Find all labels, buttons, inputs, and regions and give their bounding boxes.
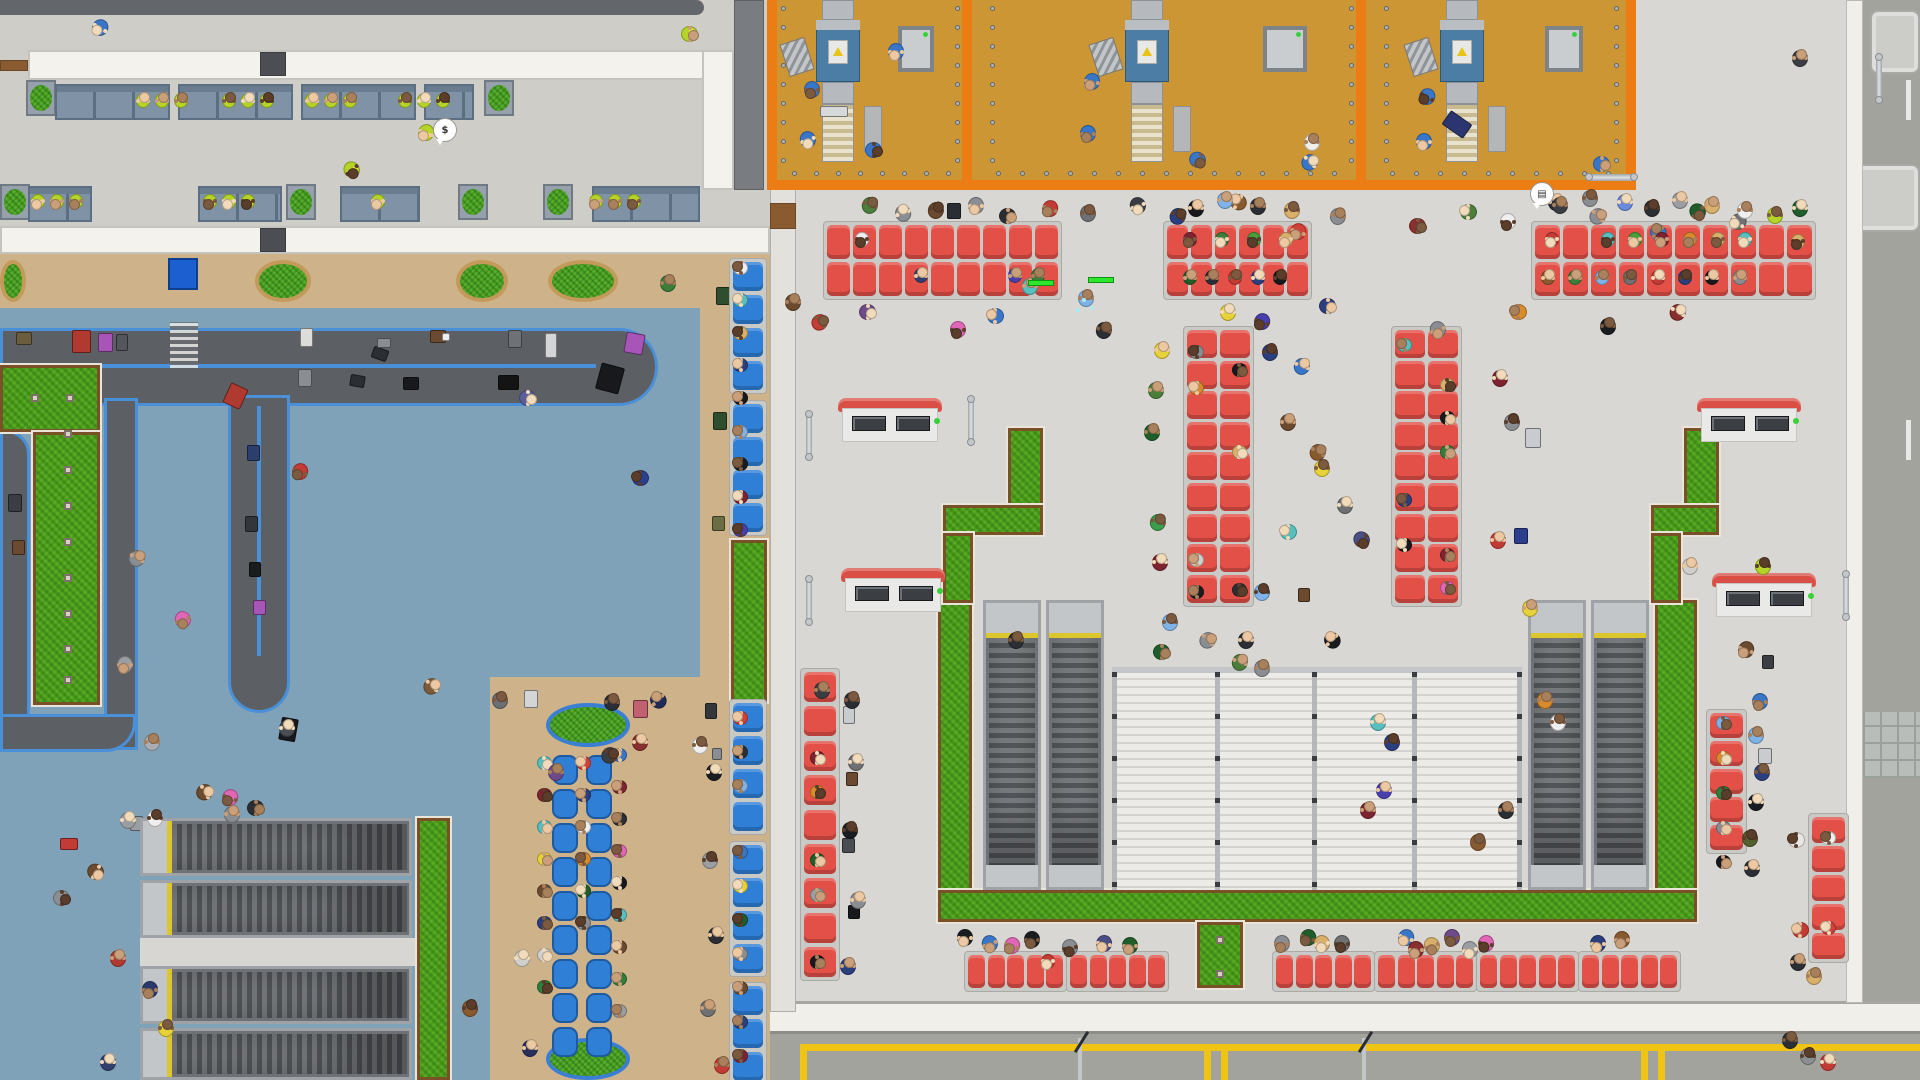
person[interactable]: [813, 680, 831, 700]
person[interactable]: [809, 852, 827, 868]
person[interactable]: [1253, 658, 1271, 678]
person[interactable]: [119, 810, 137, 830]
seat[interactable]: [1395, 575, 1425, 603]
baggage-carousel-belt[interactable]: [104, 398, 138, 750]
person[interactable]: [1819, 920, 1837, 936]
seat[interactable]: [1220, 483, 1250, 511]
seat[interactable]: [1563, 225, 1588, 259]
person[interactable]: [1790, 233, 1806, 251]
seat[interactable]: [879, 225, 902, 259]
person[interactable]: [68, 193, 84, 211]
person[interactable]: [1077, 288, 1095, 308]
seat[interactable]: [1187, 483, 1217, 511]
person[interactable]: [1278, 523, 1298, 541]
person[interactable]: [1540, 268, 1556, 286]
escalator[interactable]: [1591, 600, 1649, 890]
person[interactable]: [1253, 582, 1271, 602]
person[interactable]: [1187, 198, 1205, 218]
person[interactable]: [701, 850, 719, 870]
person[interactable]: [1754, 556, 1772, 576]
person[interactable]: [1231, 362, 1249, 378]
person[interactable]: [416, 91, 432, 109]
person[interactable]: [536, 915, 554, 931]
inspection-desk[interactable]: [1173, 106, 1191, 152]
escalator[interactable]: [1528, 600, 1586, 890]
person[interactable]: [1682, 231, 1698, 249]
person[interactable]: [731, 325, 749, 341]
seat[interactable]: [1187, 452, 1217, 480]
person[interactable]: [849, 890, 867, 910]
seat[interactable]: [931, 225, 954, 259]
person[interactable]: [1677, 268, 1693, 286]
person[interactable]: [1599, 316, 1617, 336]
person[interactable]: [731, 844, 749, 860]
person[interactable]: [435, 91, 451, 109]
person[interactable]: [1715, 750, 1733, 766]
person[interactable]: [518, 389, 538, 407]
person[interactable]: [342, 91, 358, 109]
person[interactable]: [731, 980, 749, 996]
person[interactable]: [1819, 1052, 1837, 1072]
person[interactable]: [705, 762, 723, 782]
person[interactable]: [1246, 231, 1262, 249]
person[interactable]: [1589, 934, 1607, 954]
person[interactable]: [809, 784, 827, 800]
seat[interactable]: [1090, 955, 1107, 988]
person[interactable]: [574, 915, 592, 931]
person[interactable]: [1549, 712, 1567, 732]
person[interactable]: [843, 690, 861, 710]
person[interactable]: [809, 887, 827, 903]
person[interactable]: [1395, 537, 1413, 553]
person[interactable]: [858, 303, 878, 321]
seat[interactable]: [1759, 262, 1784, 296]
person[interactable]: [1311, 933, 1332, 956]
person[interactable]: [1747, 792, 1765, 812]
seat[interactable]: [1109, 955, 1126, 988]
person[interactable]: [1249, 196, 1267, 216]
person[interactable]: [536, 947, 554, 963]
seat[interactable]: [1437, 955, 1454, 988]
person[interactable]: [1736, 200, 1754, 220]
person[interactable]: [949, 320, 967, 340]
seat[interactable]: [1296, 955, 1313, 988]
person[interactable]: [1214, 231, 1230, 249]
seat[interactable]: [1007, 955, 1024, 988]
person[interactable]: [1147, 380, 1165, 400]
person[interactable]: [1439, 410, 1457, 426]
person[interactable]: [221, 91, 237, 109]
person[interactable]: [731, 489, 749, 505]
person[interactable]: [1715, 854, 1733, 870]
person[interactable]: [202, 193, 218, 211]
seat[interactable]: [827, 225, 850, 259]
person[interactable]: [1336, 495, 1354, 515]
seat[interactable]: [1812, 933, 1845, 959]
person[interactable]: [173, 91, 189, 109]
seat[interactable]: [1395, 391, 1425, 419]
person[interactable]: [536, 979, 554, 995]
person[interactable]: [1567, 268, 1583, 286]
person[interactable]: [1613, 930, 1631, 950]
person[interactable]: [610, 779, 628, 795]
person[interactable]: [1781, 1030, 1799, 1050]
seat[interactable]: [968, 955, 985, 988]
person[interactable]: [52, 889, 72, 907]
seat[interactable]: [733, 802, 763, 831]
service-vehicle[interactable]: [1854, 164, 1920, 232]
person[interactable]: [1536, 690, 1554, 710]
person[interactable]: [731, 912, 749, 928]
person[interactable]: [998, 207, 1018, 225]
person[interactable]: [1805, 966, 1823, 986]
person[interactable]: [1250, 268, 1266, 286]
person[interactable]: [1766, 205, 1784, 225]
seat[interactable]: [1395, 361, 1425, 389]
person[interactable]: [1732, 268, 1748, 286]
seat[interactable]: [983, 225, 1006, 259]
person[interactable]: [521, 1038, 539, 1058]
person[interactable]: [1369, 712, 1387, 732]
person[interactable]: [1551, 195, 1569, 215]
person[interactable]: [240, 193, 256, 211]
person[interactable]: [513, 948, 531, 968]
person[interactable]: [1161, 612, 1179, 632]
person[interactable]: [1359, 800, 1377, 820]
person[interactable]: [803, 80, 821, 100]
person[interactable]: [1622, 268, 1638, 286]
person[interactable]: [603, 692, 621, 712]
person[interactable]: [659, 273, 677, 293]
person[interactable]: [1786, 831, 1806, 849]
seat[interactable]: [1812, 875, 1845, 901]
person[interactable]: [1121, 936, 1139, 956]
person[interactable]: [913, 266, 929, 284]
escalator[interactable]: [140, 1028, 412, 1080]
person[interactable]: [1616, 192, 1634, 212]
escalator[interactable]: [140, 818, 412, 876]
person[interactable]: [574, 851, 592, 867]
seat[interactable]: [1812, 846, 1845, 872]
person[interactable]: [1327, 205, 1348, 228]
seat[interactable]: [957, 262, 980, 296]
seat[interactable]: [1276, 955, 1293, 988]
person[interactable]: [1600, 231, 1616, 249]
seat[interactable]: [1009, 225, 1032, 259]
person[interactable]: [1204, 268, 1220, 286]
person[interactable]: [370, 193, 386, 211]
person[interactable]: [731, 357, 749, 373]
person[interactable]: [323, 91, 339, 109]
person[interactable]: [1704, 268, 1720, 286]
person[interactable]: [1751, 692, 1769, 712]
person[interactable]: [1643, 198, 1661, 218]
baggage-carousel-belt[interactable]: [0, 430, 30, 724]
person[interactable]: [1383, 732, 1401, 752]
person[interactable]: [574, 819, 592, 835]
person[interactable]: [1375, 780, 1393, 800]
person[interactable]: [536, 819, 554, 835]
seat[interactable]: [1354, 955, 1371, 988]
person[interactable]: [610, 811, 628, 827]
person[interactable]: [1007, 266, 1023, 284]
person[interactable]: [1079, 124, 1097, 144]
seat[interactable]: [1220, 391, 1250, 419]
seat[interactable]: [1187, 422, 1217, 450]
person[interactable]: [1231, 444, 1249, 460]
person[interactable]: [574, 755, 592, 771]
platform-bench[interactable]: [55, 84, 170, 120]
seat[interactable]: [1602, 955, 1619, 988]
person[interactable]: [887, 42, 905, 62]
person[interactable]: [536, 787, 554, 803]
person[interactable]: [30, 193, 46, 211]
person[interactable]: [461, 998, 479, 1018]
seat[interactable]: [1187, 514, 1217, 542]
person[interactable]: [1799, 1046, 1817, 1066]
person[interactable]: [1153, 340, 1171, 360]
person[interactable]: [731, 390, 749, 406]
seat[interactable]: [1787, 262, 1812, 296]
person[interactable]: [547, 762, 565, 782]
person[interactable]: [854, 231, 870, 249]
person[interactable]: [240, 91, 256, 109]
seat[interactable]: [1220, 330, 1250, 358]
seat[interactable]: [1582, 955, 1599, 988]
person[interactable]: [157, 1018, 175, 1038]
person[interactable]: [1415, 132, 1433, 152]
seat[interactable]: [988, 955, 1005, 988]
person[interactable]: [1627, 231, 1643, 249]
person[interactable]: [864, 141, 884, 159]
person[interactable]: [731, 292, 749, 308]
person[interactable]: [1023, 930, 1041, 950]
person[interactable]: [731, 522, 749, 538]
person[interactable]: [630, 469, 650, 487]
person[interactable]: [1791, 198, 1809, 218]
person[interactable]: [1503, 412, 1521, 432]
person[interactable]: [1272, 268, 1288, 286]
person[interactable]: [1182, 231, 1198, 249]
person[interactable]: [491, 690, 509, 710]
person[interactable]: [1592, 155, 1612, 173]
person[interactable]: [1715, 785, 1733, 801]
person[interactable]: [1237, 630, 1255, 650]
person[interactable]: [1508, 303, 1528, 321]
food-court-table[interactable]: [552, 959, 578, 989]
person[interactable]: [1671, 190, 1689, 210]
escalator[interactable]: [140, 966, 412, 1024]
seat[interactable]: [879, 262, 902, 296]
person[interactable]: [691, 735, 709, 755]
person[interactable]: [626, 193, 642, 211]
person[interactable]: [1443, 928, 1461, 948]
seat[interactable]: [804, 706, 836, 736]
person[interactable]: [116, 655, 134, 675]
person[interactable]: [1081, 71, 1102, 94]
person[interactable]: [574, 883, 592, 899]
person[interactable]: [1395, 492, 1413, 508]
person[interactable]: [610, 843, 628, 859]
person[interactable]: [1279, 412, 1297, 432]
person[interactable]: [1741, 828, 1759, 848]
food-court-table[interactable]: [586, 959, 612, 989]
person[interactable]: [146, 808, 164, 828]
seat[interactable]: [1287, 262, 1308, 296]
person[interactable]: [1475, 933, 1496, 956]
person[interactable]: [1819, 830, 1837, 846]
person[interactable]: [1079, 203, 1097, 223]
person[interactable]: [1231, 582, 1249, 598]
person[interactable]: [143, 732, 161, 752]
food-court-table[interactable]: [552, 993, 578, 1023]
person[interactable]: [221, 193, 237, 211]
seat[interactable]: [1148, 955, 1165, 988]
person[interactable]: [1650, 268, 1666, 286]
person[interactable]: [1151, 552, 1169, 572]
seat[interactable]: [1129, 955, 1146, 988]
person[interactable]: [304, 91, 320, 109]
checkin-kiosk[interactable]: [838, 398, 942, 442]
person[interactable]: [1182, 268, 1198, 286]
baggage-carousel-belt[interactable]: [0, 714, 136, 752]
person[interactable]: [1737, 231, 1753, 249]
seat[interactable]: [1378, 955, 1395, 988]
seat[interactable]: [1395, 452, 1425, 480]
person[interactable]: [610, 939, 628, 955]
person[interactable]: [1273, 934, 1291, 954]
person[interactable]: [731, 424, 749, 440]
person[interactable]: [1521, 598, 1539, 618]
seat[interactable]: [1500, 955, 1517, 988]
seat[interactable]: [983, 262, 1006, 296]
seat[interactable]: [1759, 225, 1784, 259]
seat[interactable]: [1621, 955, 1638, 988]
person[interactable]: [1093, 933, 1114, 956]
person[interactable]: [49, 193, 65, 211]
main-stairs[interactable]: [1112, 672, 1522, 890]
seat[interactable]: [1220, 544, 1250, 572]
person[interactable]: [731, 778, 749, 794]
person[interactable]: [109, 948, 127, 968]
person[interactable]: [1216, 190, 1234, 210]
person[interactable]: [246, 799, 266, 817]
person[interactable]: [1581, 188, 1599, 208]
person[interactable]: [707, 925, 725, 945]
person[interactable]: [1681, 556, 1699, 576]
baggage-chute[interactable]: [168, 258, 198, 290]
person[interactable]: [1594, 268, 1610, 286]
escalator[interactable]: [1046, 600, 1104, 890]
person[interactable]: [1143, 422, 1161, 442]
checkin-kiosk[interactable]: [1697, 398, 1801, 442]
body-scanner[interactable]: [1263, 26, 1307, 72]
seat[interactable]: [853, 262, 876, 296]
person[interactable]: [1283, 200, 1301, 220]
person[interactable]: [784, 292, 802, 312]
person[interactable]: [1303, 132, 1321, 152]
person[interactable]: [1753, 762, 1771, 782]
person[interactable]: [1333, 934, 1351, 954]
seat[interactable]: [1315, 955, 1332, 988]
seat[interactable]: [1428, 514, 1458, 542]
person[interactable]: [1654, 231, 1670, 249]
person[interactable]: [1710, 231, 1726, 249]
person[interactable]: [99, 1052, 117, 1072]
person[interactable]: [1489, 530, 1507, 550]
person[interactable]: [1187, 584, 1205, 600]
person[interactable]: [397, 91, 413, 109]
person[interactable]: [809, 954, 827, 970]
person[interactable]: [967, 196, 985, 216]
person[interactable]: [1059, 937, 1080, 960]
person[interactable]: [731, 744, 749, 760]
person[interactable]: [610, 971, 628, 987]
person[interactable]: [536, 851, 554, 867]
person[interactable]: [731, 946, 749, 962]
person[interactable]: [223, 804, 241, 824]
seat[interactable]: [1660, 955, 1677, 988]
person[interactable]: [1715, 715, 1733, 731]
person[interactable]: [154, 91, 170, 109]
person[interactable]: [1491, 368, 1509, 388]
person[interactable]: [631, 732, 649, 752]
person[interactable]: [278, 718, 296, 738]
person[interactable]: [731, 878, 749, 894]
person[interactable]: [1499, 212, 1517, 232]
seat[interactable]: [1519, 955, 1536, 988]
person[interactable]: [610, 1003, 628, 1019]
body-scanner[interactable]: [1545, 26, 1583, 72]
person[interactable]: [1439, 547, 1457, 563]
person[interactable]: [607, 193, 623, 211]
person[interactable]: [1703, 195, 1721, 215]
person[interactable]: [731, 456, 749, 472]
person[interactable]: [1187, 552, 1205, 568]
person[interactable]: [713, 1055, 731, 1075]
person[interactable]: [956, 928, 974, 948]
inspection-desk[interactable]: [1488, 106, 1506, 152]
escalator[interactable]: [140, 880, 412, 938]
person[interactable]: [1227, 268, 1243, 286]
person[interactable]: [1743, 858, 1761, 878]
person[interactable]: [141, 980, 159, 1000]
person[interactable]: [1458, 203, 1478, 221]
person[interactable]: [1219, 302, 1237, 322]
person[interactable]: [1040, 953, 1056, 971]
person[interactable]: [1439, 444, 1457, 460]
food-court-table[interactable]: [586, 993, 612, 1023]
person[interactable]: [680, 25, 700, 43]
person[interactable]: [1261, 342, 1279, 362]
person[interactable]: [1544, 231, 1560, 249]
person[interactable]: [1497, 800, 1515, 820]
person[interactable]: [839, 956, 857, 976]
person[interactable]: [259, 91, 275, 109]
person[interactable]: [610, 907, 628, 923]
seat[interactable]: [1641, 955, 1658, 988]
seat[interactable]: [1480, 955, 1497, 988]
seat[interactable]: [1428, 483, 1458, 511]
person[interactable]: [1791, 48, 1809, 68]
seat[interactable]: [827, 262, 850, 296]
person[interactable]: [841, 820, 859, 840]
seat[interactable]: [1070, 955, 1087, 988]
person[interactable]: [1439, 377, 1457, 393]
seat[interactable]: [1558, 955, 1575, 988]
checkin-kiosk[interactable]: [1712, 573, 1816, 617]
person[interactable]: [809, 750, 827, 766]
